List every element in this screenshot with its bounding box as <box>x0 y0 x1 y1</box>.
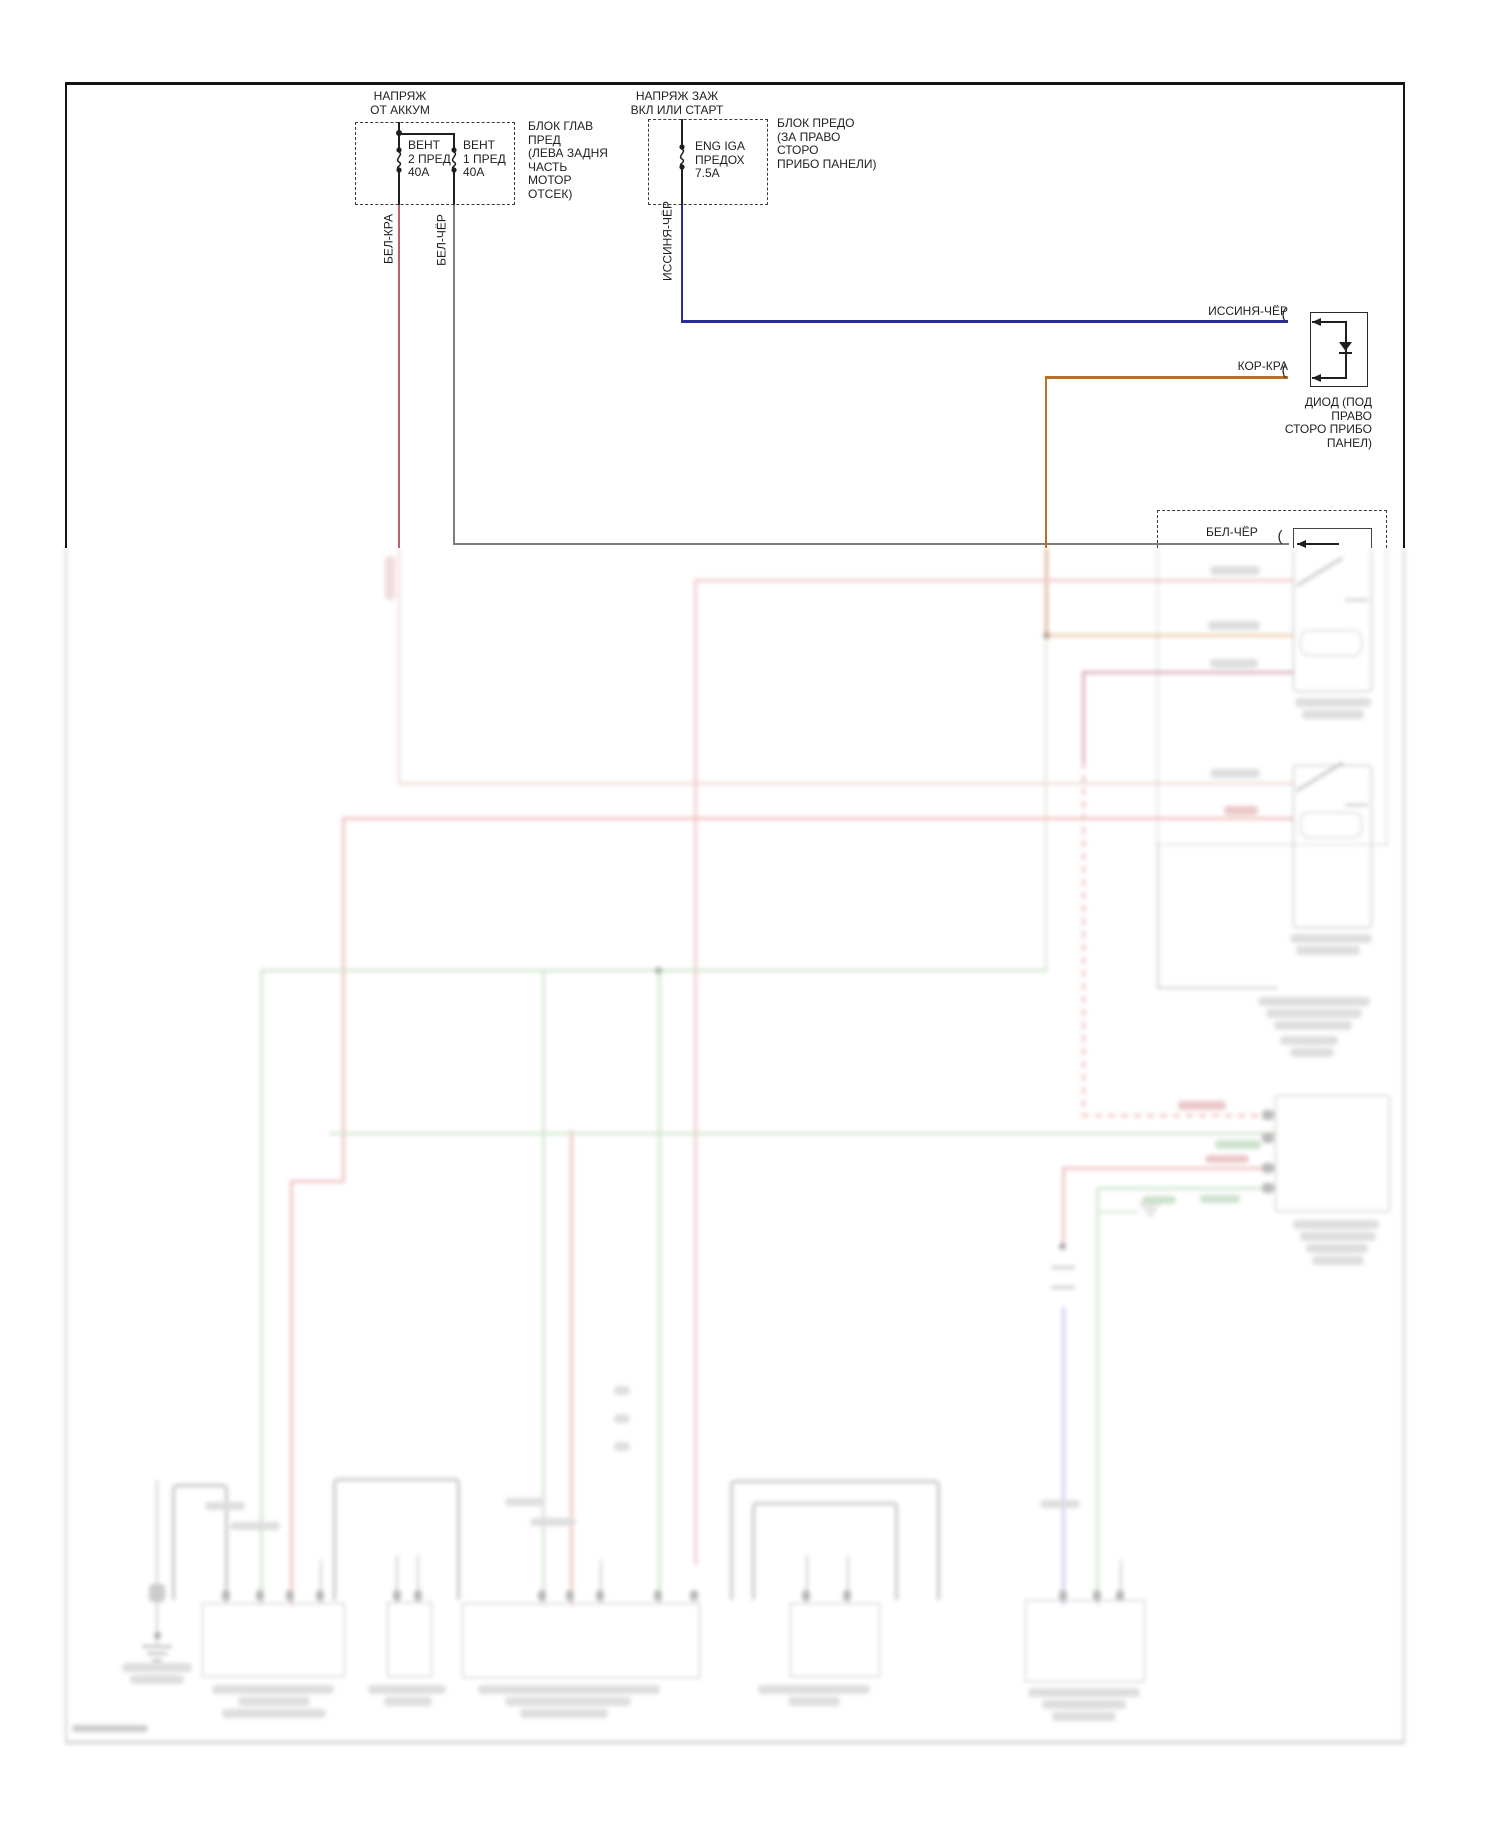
component-box-d <box>790 1603 880 1677</box>
connector-arrow-icon <box>1312 318 1321 326</box>
connector-staple <box>333 1478 460 1600</box>
blurred-text-smudge <box>566 1590 574 1601</box>
blurred-text-smudge <box>1280 1036 1338 1045</box>
connector-paren-icon: ( <box>1278 528 1283 545</box>
blurred-text-smudge <box>614 1386 630 1395</box>
junction-dot <box>396 130 402 136</box>
blurred-text-smudge <box>1052 1712 1116 1721</box>
connector-paren-icon: ( <box>1282 362 1287 379</box>
ground-left-icon <box>142 1645 172 1648</box>
module-box-right <box>1275 1095 1390 1212</box>
wire-issinya-cher-horiz-label: ИССИНЯ-ЧЁР <box>1190 305 1288 319</box>
blurred-text-smudge <box>1290 934 1372 943</box>
wire <box>1082 762 1085 1116</box>
blurred-text-smudge <box>1200 1195 1240 1203</box>
wire <box>1082 1114 1275 1117</box>
wire <box>1045 548 1048 636</box>
relay2-coil <box>1300 812 1362 838</box>
blurred-text-smudge <box>1210 769 1260 778</box>
blurred-text-smudge <box>1258 997 1370 1006</box>
wire <box>1062 1168 1065 1247</box>
blurred-text-smudge <box>130 1675 184 1684</box>
wire <box>1045 636 1047 972</box>
fuse-vent1-icon <box>448 147 460 178</box>
connector-arrow-icon <box>1312 374 1321 382</box>
blurred-text-smudge <box>1262 1133 1274 1143</box>
blurred-text-smudge <box>1293 1220 1379 1229</box>
wire <box>290 1180 344 1183</box>
relay1-box <box>1293 548 1372 692</box>
diode-icon <box>1338 342 1353 361</box>
blurred-text-smudge <box>654 1590 662 1601</box>
blurred-text-smudge <box>843 1590 851 1601</box>
wire <box>260 970 263 1605</box>
wire <box>156 1480 158 1646</box>
blurred-text-smudge <box>1210 659 1258 668</box>
feed-battery-title: НАПРЯЖ ОТ АККУМ <box>352 90 448 117</box>
blurred-text-smudge <box>368 1685 446 1694</box>
ground-mid-right-icon <box>1143 1208 1157 1210</box>
blurred-text-smudge <box>1224 806 1258 815</box>
wire <box>453 205 455 544</box>
blurred-text-smudge <box>1296 946 1360 955</box>
blurred-text-smudge <box>1028 1688 1140 1697</box>
connector-staple <box>752 1502 898 1600</box>
wire <box>1082 672 1085 763</box>
wire-bel-cher-label: БЕЛ-ЧЁР <box>435 214 449 266</box>
wire-bel-kra-label: БЕЛ-КРА <box>382 214 396 264</box>
blurred-text-smudge <box>520 1709 608 1718</box>
blurred-text-smudge <box>230 1522 280 1530</box>
blurred-text-smudge <box>1051 1286 1075 1289</box>
cabin-fusebox-label: БЛОК ПРЕДО (ЗА ПРАВО СТОРО ПРИБО ПАНЕЛИ) <box>777 117 901 171</box>
blurred-text-smudge <box>1312 1256 1364 1265</box>
diode-label: ДИОД (ПОД ПРАВО СТОРО ПРИБО ПАНЕЛ) <box>1252 396 1372 450</box>
blurred-text-smudge <box>788 1697 840 1706</box>
wire <box>342 817 1294 820</box>
blurred-text-smudge <box>414 1590 422 1601</box>
blurred-text-smudge <box>212 1685 334 1694</box>
component-box-b <box>387 1602 432 1677</box>
blurred-text-smudge <box>530 1518 576 1526</box>
blurred-text-smudge <box>505 1498 545 1506</box>
wire <box>1096 1187 1275 1190</box>
wire <box>290 1181 293 1605</box>
wire <box>542 970 545 1605</box>
blurred-text-smudge <box>1306 1244 1368 1253</box>
blurred-text-smudge <box>393 1590 401 1601</box>
blurred-text-smudge <box>286 1590 294 1601</box>
junction-dot <box>1043 632 1050 639</box>
feed-ignition-title: НАПРЯЖ ЗАЖ ВКЛ ИЛИ СТАРТ <box>606 90 748 117</box>
blurred-text-smudge <box>1274 1021 1352 1030</box>
ground-left-icon <box>152 1659 162 1662</box>
blurred-text-smudge <box>1302 710 1364 719</box>
blurred-text-smudge <box>256 1590 264 1601</box>
blurred-text-smudge <box>1266 1009 1362 1018</box>
blurred-text-smudge <box>758 1685 870 1694</box>
connector-arrow-icon <box>1297 540 1306 548</box>
blurred-text-smudge <box>1040 1500 1080 1508</box>
blurred-text-smudge <box>1142 1196 1176 1204</box>
wire <box>681 320 1288 323</box>
blurred-text-smudge <box>505 1697 631 1706</box>
blurred-text-smudge <box>1300 1232 1376 1241</box>
blurred-text-smudge <box>614 1414 630 1423</box>
wire <box>681 205 683 322</box>
connector-paren-icon: ( <box>1282 306 1287 323</box>
wire <box>658 970 661 1603</box>
blurred-text-smudge <box>1051 1266 1075 1269</box>
wire <box>398 548 400 784</box>
wire <box>1045 376 1288 379</box>
component-box-e <box>1025 1600 1145 1682</box>
fuse-vent1-label: ВЕНТ 1 ПРЕД 40А <box>463 139 519 180</box>
junction-dot <box>655 967 662 974</box>
wire <box>398 205 400 548</box>
blurred-text-smudge <box>222 1709 326 1718</box>
wire <box>1062 1167 1275 1170</box>
blurred-text-smudge <box>1042 1700 1126 1709</box>
blurred-text-smudge <box>1208 621 1260 630</box>
junction-dot <box>154 1632 161 1639</box>
blurred-text-smudge <box>596 1590 604 1601</box>
blurred-text-smudge <box>1178 1101 1226 1110</box>
blurred-text-smudge <box>316 1590 324 1601</box>
wiring-diagram: НАПРЯЖ ОТ АККУМНАПРЯЖ ЗАЖ ВКЛ ИЛИ СТАРТВ… <box>0 0 1500 1828</box>
blurred-region <box>0 548 1500 1744</box>
wire <box>342 818 345 1182</box>
wire <box>570 1130 573 1605</box>
wire <box>1157 987 1278 989</box>
blurred-text-smudge <box>478 1685 660 1694</box>
relay2-box <box>1293 765 1372 928</box>
wire <box>330 1132 1275 1135</box>
blurred-text-smudge <box>1262 1110 1274 1120</box>
ground-mid-right-icon <box>1147 1213 1154 1215</box>
fuse-engiga-label: ENG IGA ПРЕДОХ 7.5А <box>695 140 765 181</box>
blurred-text-smudge <box>1059 1590 1067 1601</box>
blurred-text-smudge <box>222 1590 230 1601</box>
blurred-text-smudge <box>72 1725 148 1732</box>
blurred-text-smudge <box>205 1502 245 1510</box>
wire <box>1157 845 1159 989</box>
blurred-text-smudge <box>690 1590 698 1601</box>
ground-left-icon <box>147 1652 167 1655</box>
wire-bel-cher-right-label: БЕЛ-ЧЁР <box>1206 526 1268 540</box>
blurred-text-smudge <box>1262 1183 1274 1193</box>
sharp-region: НАПРЯЖ ОТ АККУМНАПРЯЖ ЗАЖ ВКЛ ИЛИ СТАРТВ… <box>0 0 1500 548</box>
wire <box>1045 378 1047 548</box>
wire <box>1062 1307 1065 1605</box>
wire <box>1096 1188 1099 1605</box>
blurred-text-smudge <box>1116 1590 1124 1601</box>
relay1-coil <box>1300 630 1362 656</box>
blurred-text-smudge <box>1093 1590 1101 1601</box>
fuse-engiga-icon <box>676 144 688 175</box>
fuse-vent2-icon <box>393 147 405 178</box>
wire <box>694 580 697 1565</box>
blurred-text-smudge <box>1215 1140 1261 1149</box>
blurred-text-smudge <box>1210 566 1260 575</box>
wire <box>1096 1211 1138 1213</box>
wire-issinya-cher-vert-label: ИССИНЯ-ЧЁР <box>661 201 675 281</box>
blurred-text-smudge <box>1290 1048 1334 1057</box>
blurred-text-smudge <box>614 1442 630 1451</box>
blurred-text-smudge <box>122 1663 192 1672</box>
blurred-text-smudge <box>538 1590 546 1601</box>
blurred-text-smudge <box>384 1697 432 1706</box>
component-box-c <box>462 1603 700 1678</box>
main-fusebox-label: БЛОК ГЛАВ ПРЕД (ЛЕВА ЗАДНЯ ЧАСТЬ МОТОР О… <box>528 120 640 201</box>
blurred-text-smudge <box>149 1584 165 1602</box>
blurred-text-smudge <box>238 1697 310 1706</box>
blurred-text-smudge <box>1295 698 1371 707</box>
wire-kor-kra-label: КОР-КРА <box>1190 360 1288 374</box>
blurred-text-smudge <box>802 1590 810 1601</box>
blurred-text-smudge <box>1205 1155 1249 1163</box>
junction-dot <box>1059 1243 1066 1250</box>
blurred-text-smudge <box>1262 1163 1274 1173</box>
blurred-text-smudge <box>385 556 395 600</box>
component-box-a <box>202 1603 345 1677</box>
